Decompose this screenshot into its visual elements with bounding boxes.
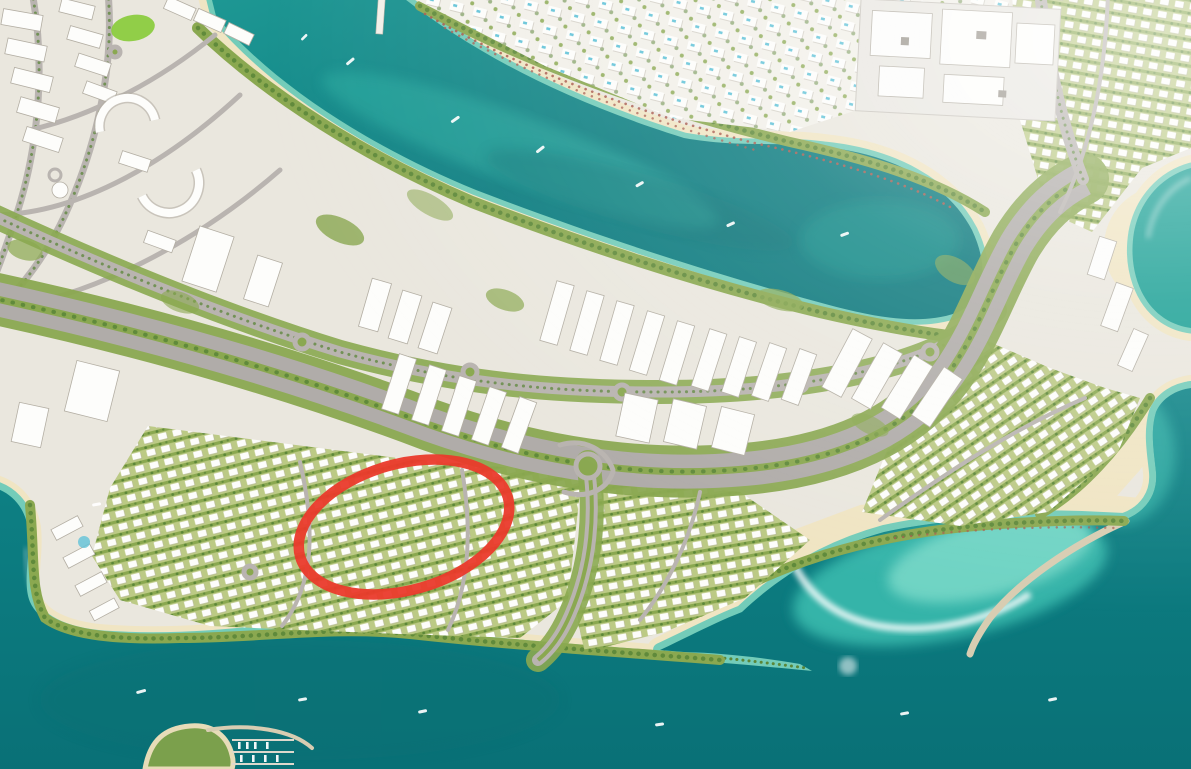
masterplan-map — [0, 0, 1191, 769]
haze-overlay — [0, 0, 1191, 769]
masterplan-map-viewport — [0, 0, 1191, 769]
